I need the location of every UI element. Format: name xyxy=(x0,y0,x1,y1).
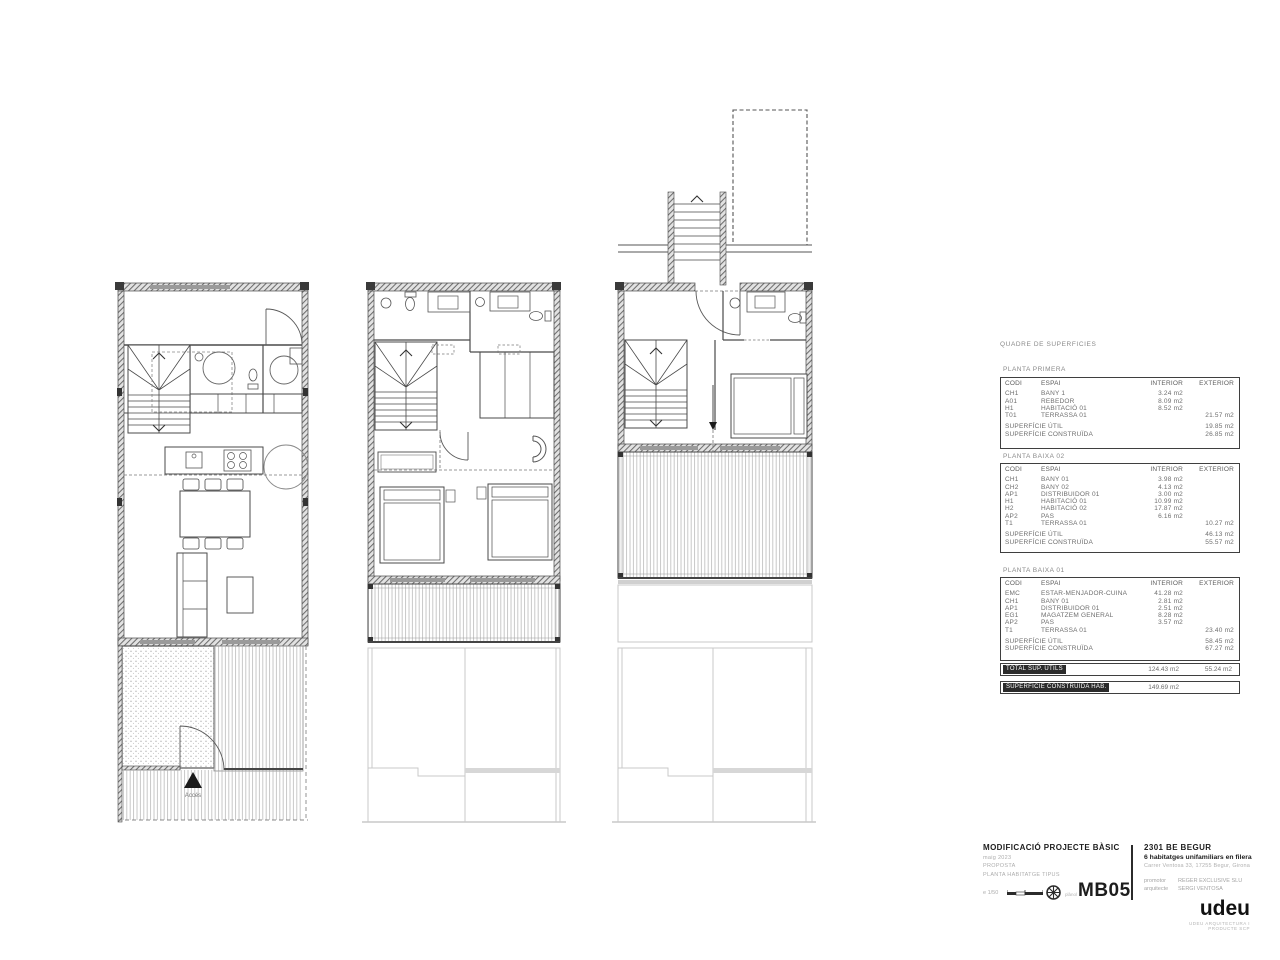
table-row: EG1 MAGATZEM GENERAL 8.28 m2 xyxy=(1001,612,1239,619)
table-title: PLANTA BAIXA 02 xyxy=(1003,453,1065,460)
table-row: AP1 DISTRIBUIDOR 01 2.51 m2 xyxy=(1001,605,1239,612)
terrace-courtyard: Accés xyxy=(118,646,308,822)
project-type: MODIFICACIÓ PROJECTE BÀSIC xyxy=(983,843,1121,852)
table-title: PLANTA BAIXA 01 xyxy=(1003,567,1065,574)
promoter-name: REGER EXCLUSIVE SLU xyxy=(1178,878,1264,884)
studio-tagline: UDEU ARQUITECTURA I PRODUCTE SCP xyxy=(1160,921,1250,931)
table-row: T01 TERRASSA 01 21.57 m2 xyxy=(1001,412,1239,419)
bed xyxy=(488,484,552,560)
table-row: AP1 DISTRIBUIDOR 01 3.00 m2 xyxy=(1001,491,1239,498)
entry-door-swing xyxy=(696,291,740,335)
col-espai: ESPAI xyxy=(1041,380,1141,387)
project-description: 6 habitatges unifamiliars en filera xyxy=(1144,854,1264,861)
table-row: CH2 BANY 02 4.13 m2 xyxy=(1001,484,1239,491)
surface-table-planta-primera: CODI ESPAI INTERIOR EXTERIOR CH1 BANY 1 … xyxy=(1000,377,1240,449)
table-row: AP2 PAS 6.16 m2 xyxy=(1001,513,1239,520)
title-block-left: MODIFICACIÓ PROJECTE BÀSIC maig 2023 PRO… xyxy=(983,843,1121,878)
toilet xyxy=(530,312,543,321)
table-header: CODI ESPAI INTERIOR EXTERIOR xyxy=(1001,380,1239,387)
table-row: EMC ESTAR-MENJADOR-CUINA 41.28 m2 xyxy=(1001,590,1239,597)
table-row: T1 TERRASSA 01 23.40 m2 xyxy=(1001,627,1239,634)
project-address: Carrer Ventosa 33, 17255 Begur, Girona xyxy=(1144,863,1264,869)
promoter-label: promotor xyxy=(1144,878,1178,884)
col-interior: INTERIOR xyxy=(1141,380,1183,387)
total-construida-bar: SUPERFÍCIE CONSTRUÏDA HAB. 149.69 m2 xyxy=(1000,681,1240,694)
basin xyxy=(381,298,391,308)
nightstand xyxy=(477,487,486,499)
plan-planta-baixa-02 xyxy=(366,282,561,642)
table-row: A01 REBEDOR 8.09 m2 xyxy=(1001,398,1239,405)
north-compass-icon xyxy=(1045,884,1062,901)
table-row: H2 HABITACIÓ 02 17.87 m2 xyxy=(1001,505,1239,512)
toilet xyxy=(249,369,257,381)
plan-planta-primera xyxy=(615,110,813,578)
exterior-stair xyxy=(668,192,726,285)
table-row: CH1 BANY 1 3.24 m2 xyxy=(1001,390,1239,397)
drawing-date: maig 2023 xyxy=(983,855,1121,861)
staircase xyxy=(625,340,687,428)
scale-bar xyxy=(1007,890,1043,896)
coffee-table xyxy=(227,577,253,613)
scale-label: e 1/50 xyxy=(983,890,998,896)
sofa xyxy=(177,553,207,637)
plan-planta-baixa-01: Accés xyxy=(115,282,309,822)
toilet xyxy=(789,314,802,323)
table-header: CODI ESPAI INTERIOR EXTERIOR xyxy=(1001,580,1239,587)
kitchen-island xyxy=(165,447,263,474)
total-construida-label: SUPERFÍCIE CONSTRUÏDA HAB. xyxy=(1003,683,1109,692)
armchair xyxy=(533,436,546,462)
table-row: T1 TERRASSA 01 10.27 m2 xyxy=(1001,520,1239,527)
project-code: 2301 BE BEGUR xyxy=(1144,843,1264,852)
table-row: H1 HABITACIÓ 01 10.99 m2 xyxy=(1001,498,1239,505)
title-block-divider xyxy=(1131,845,1133,900)
staircase xyxy=(128,345,190,433)
surfaces-title: QUADRE DE SUPERFICIES xyxy=(1000,341,1096,348)
acces-label: Accés xyxy=(185,793,201,799)
architect-label: arquitecte xyxy=(1144,886,1178,892)
bed xyxy=(380,487,444,563)
basin xyxy=(730,298,740,308)
col-codi: CODI xyxy=(1005,380,1041,387)
dining-table xyxy=(180,479,250,549)
architect-row: arquitecte SERGI VENTOSA xyxy=(1144,886,1264,892)
boundary-dashed xyxy=(733,110,807,245)
bed xyxy=(731,374,807,438)
terrace-deck xyxy=(618,452,812,578)
scale-row: e 1/50 plànol MB05 xyxy=(983,884,1138,904)
drawing-sheet: Accés xyxy=(0,0,1280,960)
drawing-name: PLANTA HABITATGE TIPUS xyxy=(983,872,1121,878)
col-exterior: EXTERIOR xyxy=(1183,380,1234,387)
vanity xyxy=(747,292,785,312)
table-row: CH1 BANY 01 3.98 m2 xyxy=(1001,476,1239,483)
table-footer: SUPERFÍCIE ÚTIL 58.45 m2 SUPERFÍCIE CONS… xyxy=(1001,638,1239,653)
nightstand xyxy=(446,490,455,502)
sheet-code: MB05 xyxy=(1078,880,1131,902)
surface-table-planta-baixa-01: CODI ESPAI INTERIOR EXTERIOR EMC ESTAR-M… xyxy=(1000,577,1240,661)
door-swing xyxy=(440,432,468,460)
table-footer: SUPERFÍCIE ÚTIL 46.13 m2 SUPERFÍCIE CONS… xyxy=(1001,531,1239,546)
table-row: CH1 BANY 01 2.81 m2 xyxy=(1001,598,1239,605)
table-footer: SUPERFÍCIE ÚTIL 19.85 m2 SUPERFÍCIE CONS… xyxy=(1001,423,1239,438)
architect-name: SERGI VENTOSA xyxy=(1178,886,1264,892)
staircase xyxy=(375,342,437,430)
surface-table-planta-baixa-02: CODI ESPAI INTERIOR EXTERIOR CH1 BANY 01… xyxy=(1000,463,1240,553)
door-swing xyxy=(266,309,302,345)
title-block-right: 2301 BE BEGUR 6 habitatges unifamiliars … xyxy=(1144,843,1264,892)
table-title: PLANTA PRIMERA xyxy=(1003,366,1066,373)
table-row: H1 HABITACIÓ 01 8.52 m2 xyxy=(1001,405,1239,412)
window-band xyxy=(150,285,230,289)
total-util-label: TOTAL SUP. ÚTILS xyxy=(1003,665,1066,674)
promoter-row: promotor REGER EXCLUSIVE SLU xyxy=(1144,878,1264,884)
total-util-bar: TOTAL SUP. ÚTILS 124.43 m2 55.24 m2 xyxy=(1000,663,1240,676)
sheet-label: plànol xyxy=(1065,892,1077,897)
toilet xyxy=(406,298,415,311)
table-row: AP2 PAS 3.57 m2 xyxy=(1001,619,1239,626)
studio-logo: udeu xyxy=(1160,898,1250,920)
table-header: CODI ESPAI INTERIOR EXTERIOR xyxy=(1001,466,1239,473)
terrace-deck xyxy=(368,584,560,642)
drawing-phase: PROPOSTA xyxy=(983,863,1121,869)
studio-logo-block: udeu UDEU ARQUITECTURA I PRODUCTE SCP xyxy=(1160,898,1250,931)
